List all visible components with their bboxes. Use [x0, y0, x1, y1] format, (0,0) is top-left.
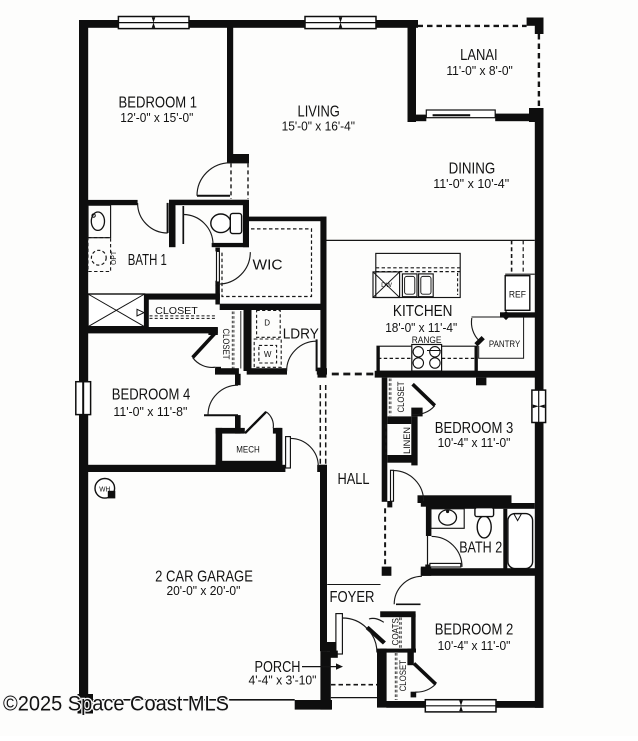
svg-text:20'-0" x 20'-0": 20'-0" x 20'-0" [166, 584, 240, 598]
svg-text:DW: DW [381, 282, 393, 289]
svg-text:LINEN: LINEN [402, 427, 412, 454]
svg-text:BEDROOM 3: BEDROOM 3 [435, 420, 514, 437]
svg-text:HALL: HALL [338, 471, 370, 488]
svg-text:WH: WH [99, 486, 110, 493]
svg-text:PANTRY: PANTRY [489, 339, 521, 350]
svg-text:CLOSET: CLOSET [398, 660, 408, 692]
svg-text:BATH 1: BATH 1 [128, 252, 167, 269]
svg-text:18'-0" x 11'-4": 18'-0" x 11'-4" [385, 321, 457, 335]
svg-text:BEDROOM 4: BEDROOM 4 [112, 387, 191, 404]
svg-text:15'-0" x 16'-4": 15'-0" x 16'-4" [282, 119, 355, 133]
svg-text:12'-0" x 15'-0": 12'-0" x 15'-0" [120, 111, 193, 125]
svg-text:BEDROOM 1: BEDROOM 1 [119, 95, 198, 112]
svg-text:BEDROOM 2: BEDROOM 2 [435, 622, 514, 639]
svg-text:2 CAR GARAGE: 2 CAR GARAGE [155, 568, 253, 585]
svg-text:CLOSET: CLOSET [396, 381, 406, 412]
svg-text:10'-4" x 11'-0": 10'-4" x 11'-0" [438, 436, 511, 450]
svg-text:COATS: COATS [391, 618, 402, 646]
svg-text:D: D [264, 318, 270, 327]
svg-text:W: W [264, 350, 272, 359]
svg-text:4'-4" x 3'-10": 4'-4" x 3'-10" [249, 674, 317, 688]
svg-text:WIC: WIC [253, 258, 283, 274]
svg-text:11'-0" x 8'-0": 11'-0" x 8'-0" [446, 64, 512, 78]
svg-text:10'-4" x 11'-0": 10'-4" x 11'-0" [438, 639, 511, 653]
svg-text:11'-0" x 10'-4": 11'-0" x 10'-4" [433, 177, 509, 191]
svg-text:MECH: MECH [236, 444, 260, 455]
svg-text:©2025 Space Coast MLS: ©2025 Space Coast MLS [3, 692, 229, 716]
svg-text:11'-0" x 11'-8": 11'-0" x 11'-8" [113, 405, 187, 419]
svg-text:CLOSET: CLOSET [221, 329, 231, 360]
svg-text:REF: REF [509, 290, 526, 301]
svg-text:LIVING: LIVING [298, 103, 340, 120]
svg-text:OPT: OPT [109, 251, 118, 265]
svg-text:BATH 2: BATH 2 [459, 540, 502, 557]
svg-text:LANAI: LANAI [460, 47, 498, 64]
svg-text:DINING: DINING [449, 160, 496, 177]
svg-text:LDRY: LDRY [283, 326, 319, 343]
svg-text:KITCHEN: KITCHEN [393, 303, 453, 320]
svg-text:FOYER: FOYER [330, 589, 375, 606]
